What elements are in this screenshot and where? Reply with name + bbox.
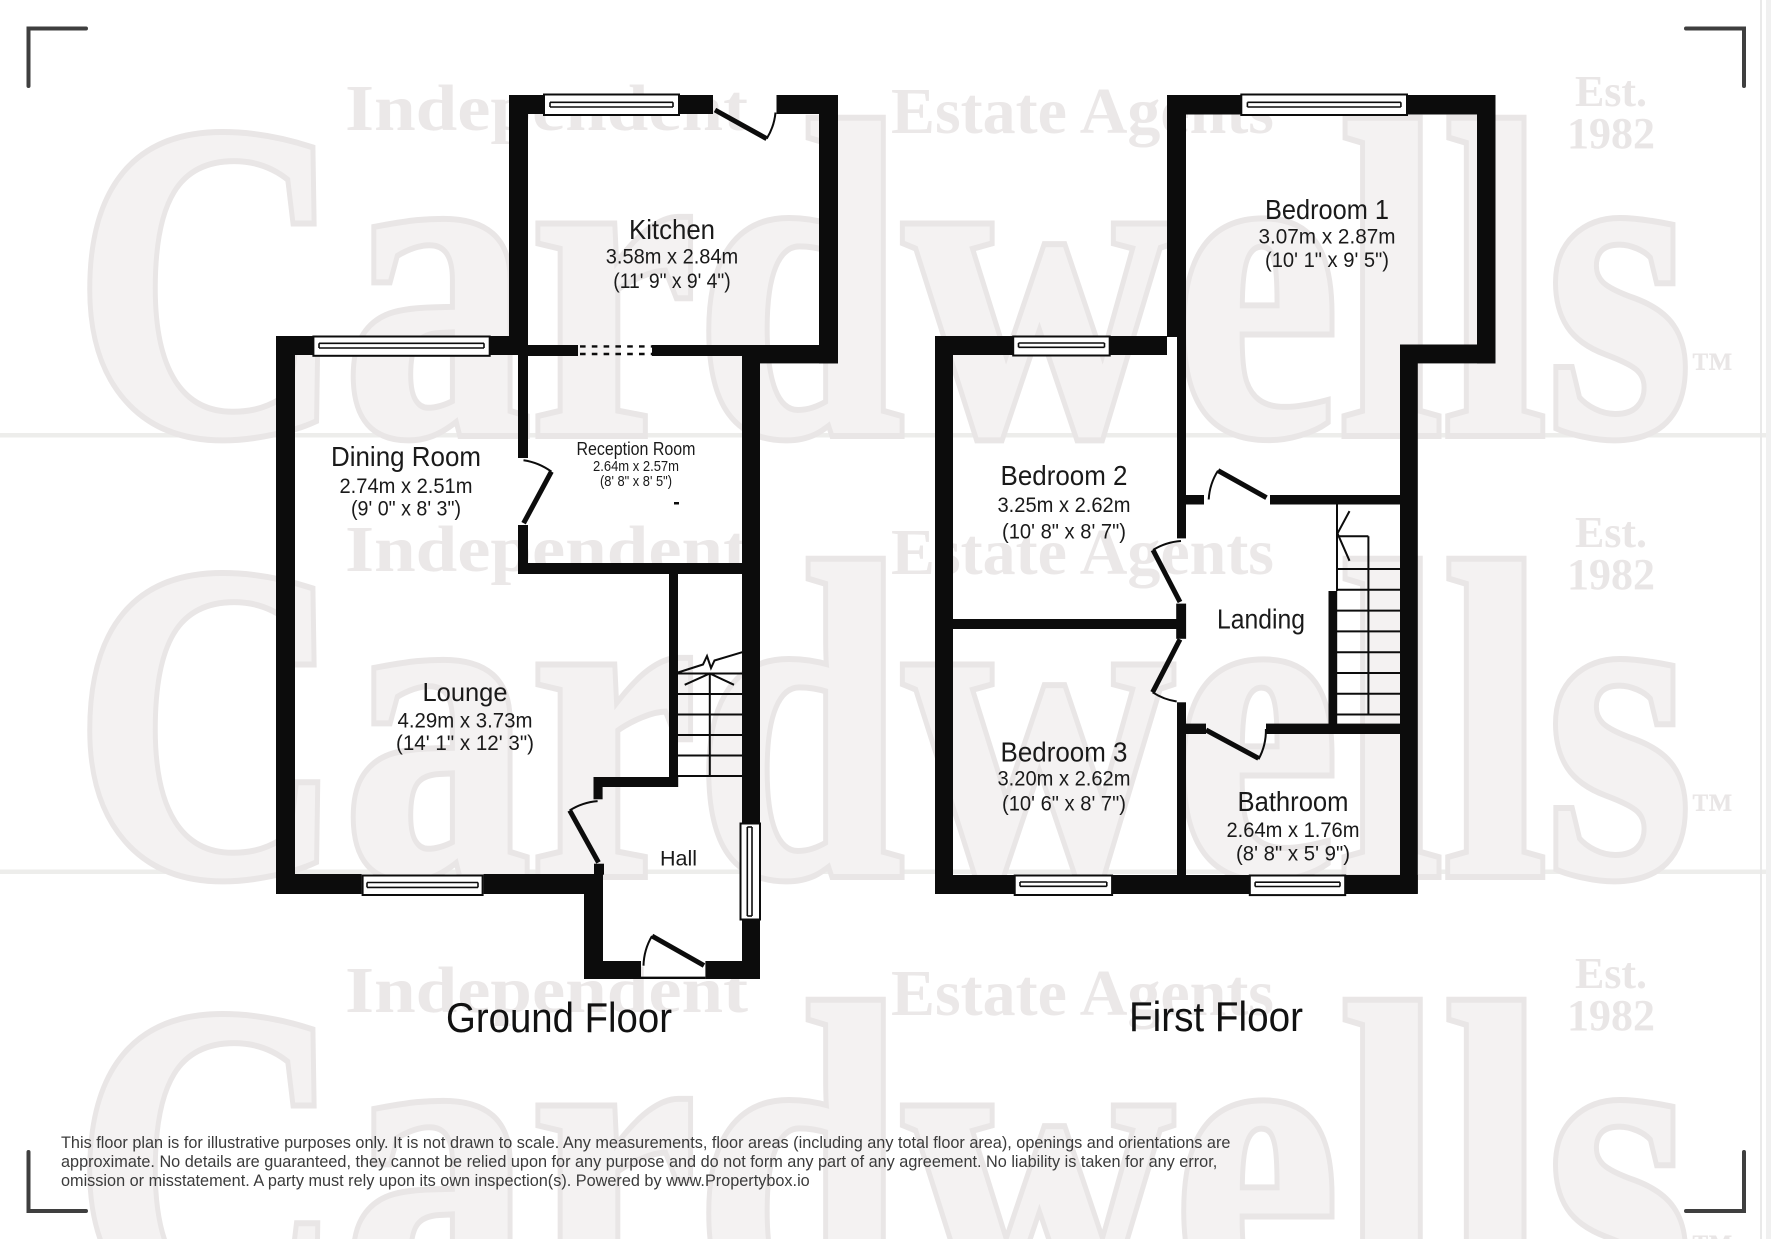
svg-text:Cardwells: Cardwells [74, 915, 1692, 1239]
svg-text:3.20m x 2.62m: 3.20m x 2.62m [998, 767, 1131, 791]
svg-text:(14' 1" x 12' 3"): (14' 1" x 12' 3") [396, 731, 534, 755]
svg-text:(9' 0" x 8' 3"): (9' 0" x 8' 3") [351, 497, 461, 521]
svg-text:3.58m x 2.84m: 3.58m x 2.84m [606, 245, 739, 269]
svg-text:Hall: Hall [660, 847, 697, 871]
svg-text:Kitchen: Kitchen [629, 214, 715, 245]
svg-text:™: ™ [1691, 345, 1733, 391]
svg-text:(11' 9" x 9' 4"): (11' 9" x 9' 4") [613, 269, 731, 293]
svg-text:3.25m x 2.62m: 3.25m x 2.62m [998, 493, 1131, 517]
svg-text:™: ™ [1691, 786, 1733, 832]
svg-text:(8' 8" x 8' 5"): (8' 8" x 8' 5") [600, 473, 672, 490]
svg-text:omission or misstatement. A pa: omission or misstatement. A party must r… [61, 1172, 810, 1190]
svg-text:1982: 1982 [1567, 550, 1655, 599]
svg-text:First Floor: First Floor [1129, 993, 1303, 1040]
svg-text:4.29m x 3.73m: 4.29m x 3.73m [398, 709, 533, 733]
svg-text:Bedroom 2: Bedroom 2 [1001, 460, 1128, 491]
svg-text:(10' 8" x 8' 7"): (10' 8" x 8' 7") [1002, 520, 1126, 544]
svg-text:(10' 1" x 9' 5"): (10' 1" x 9' 5") [1265, 248, 1389, 272]
svg-text:approximate. No details are gu: approximate. No details are guaranteed, … [61, 1153, 1217, 1171]
svg-text:Independent: Independent [345, 513, 748, 586]
svg-text:Dining Room: Dining Room [331, 441, 481, 472]
svg-text:3.07m x 2.87m: 3.07m x 2.87m [1259, 225, 1396, 249]
svg-text:Bedroom 3: Bedroom 3 [1001, 737, 1128, 768]
svg-text:1982: 1982 [1567, 991, 1655, 1040]
svg-text:1982: 1982 [1567, 109, 1655, 158]
svg-text:2.74m x 2.51m: 2.74m x 2.51m [340, 474, 473, 498]
svg-text:(10' 6" x 8' 7"): (10' 6" x 8' 7") [1002, 792, 1126, 816]
svg-text:Lounge: Lounge [423, 677, 508, 707]
svg-text:™: ™ [1691, 1227, 1733, 1239]
svg-text:(8' 8" x 5' 9"): (8' 8" x 5' 9") [1236, 842, 1350, 866]
svg-text:2.64m x 1.76m: 2.64m x 1.76m [1227, 818, 1360, 842]
svg-text:Landing: Landing [1217, 604, 1305, 635]
svg-text:Ground Floor: Ground Floor [446, 994, 672, 1041]
svg-text:This floor plan is for illustr: This floor plan is for illustrative purp… [61, 1134, 1230, 1152]
svg-text:Reception Room: Reception Room [577, 439, 696, 459]
svg-text:Bathroom: Bathroom [1238, 786, 1349, 817]
svg-text:Bedroom 1: Bedroom 1 [1265, 194, 1389, 225]
svg-text:Cardwells: Cardwells [74, 474, 1692, 972]
